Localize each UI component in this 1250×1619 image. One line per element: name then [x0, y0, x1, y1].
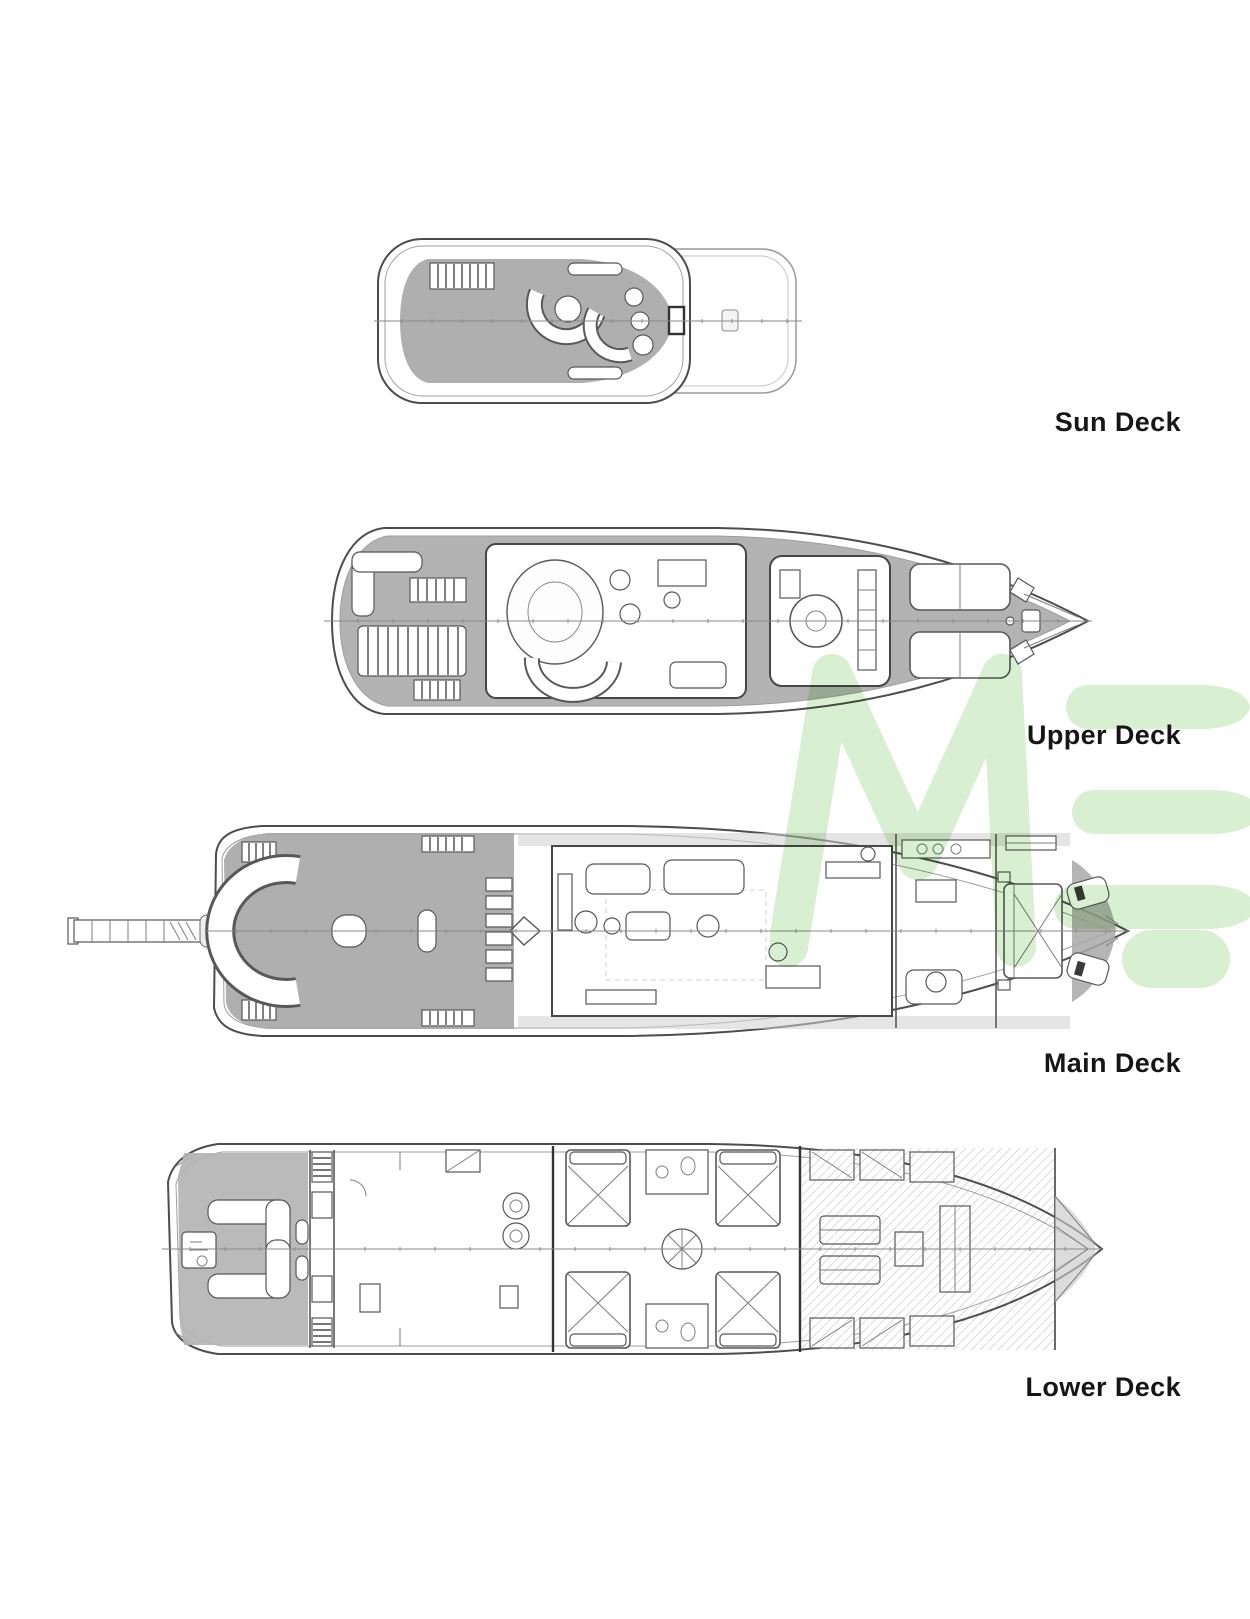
main-deck-drawing — [66, 820, 1138, 1042]
upper-deck-label: Upper Deck — [861, 721, 1181, 749]
sun-deck-drawing — [372, 233, 804, 409]
main-deck-label: Main Deck — [861, 1049, 1181, 1077]
lower-deck-label: Lower Deck — [861, 1373, 1181, 1401]
yacht-deck-plans-page: Sun Deck — [0, 0, 1250, 1619]
sun-deck-label: Sun Deck — [861, 408, 1181, 436]
lower-deck-drawing — [150, 1136, 1112, 1362]
upper-deck-drawing — [318, 522, 1096, 720]
